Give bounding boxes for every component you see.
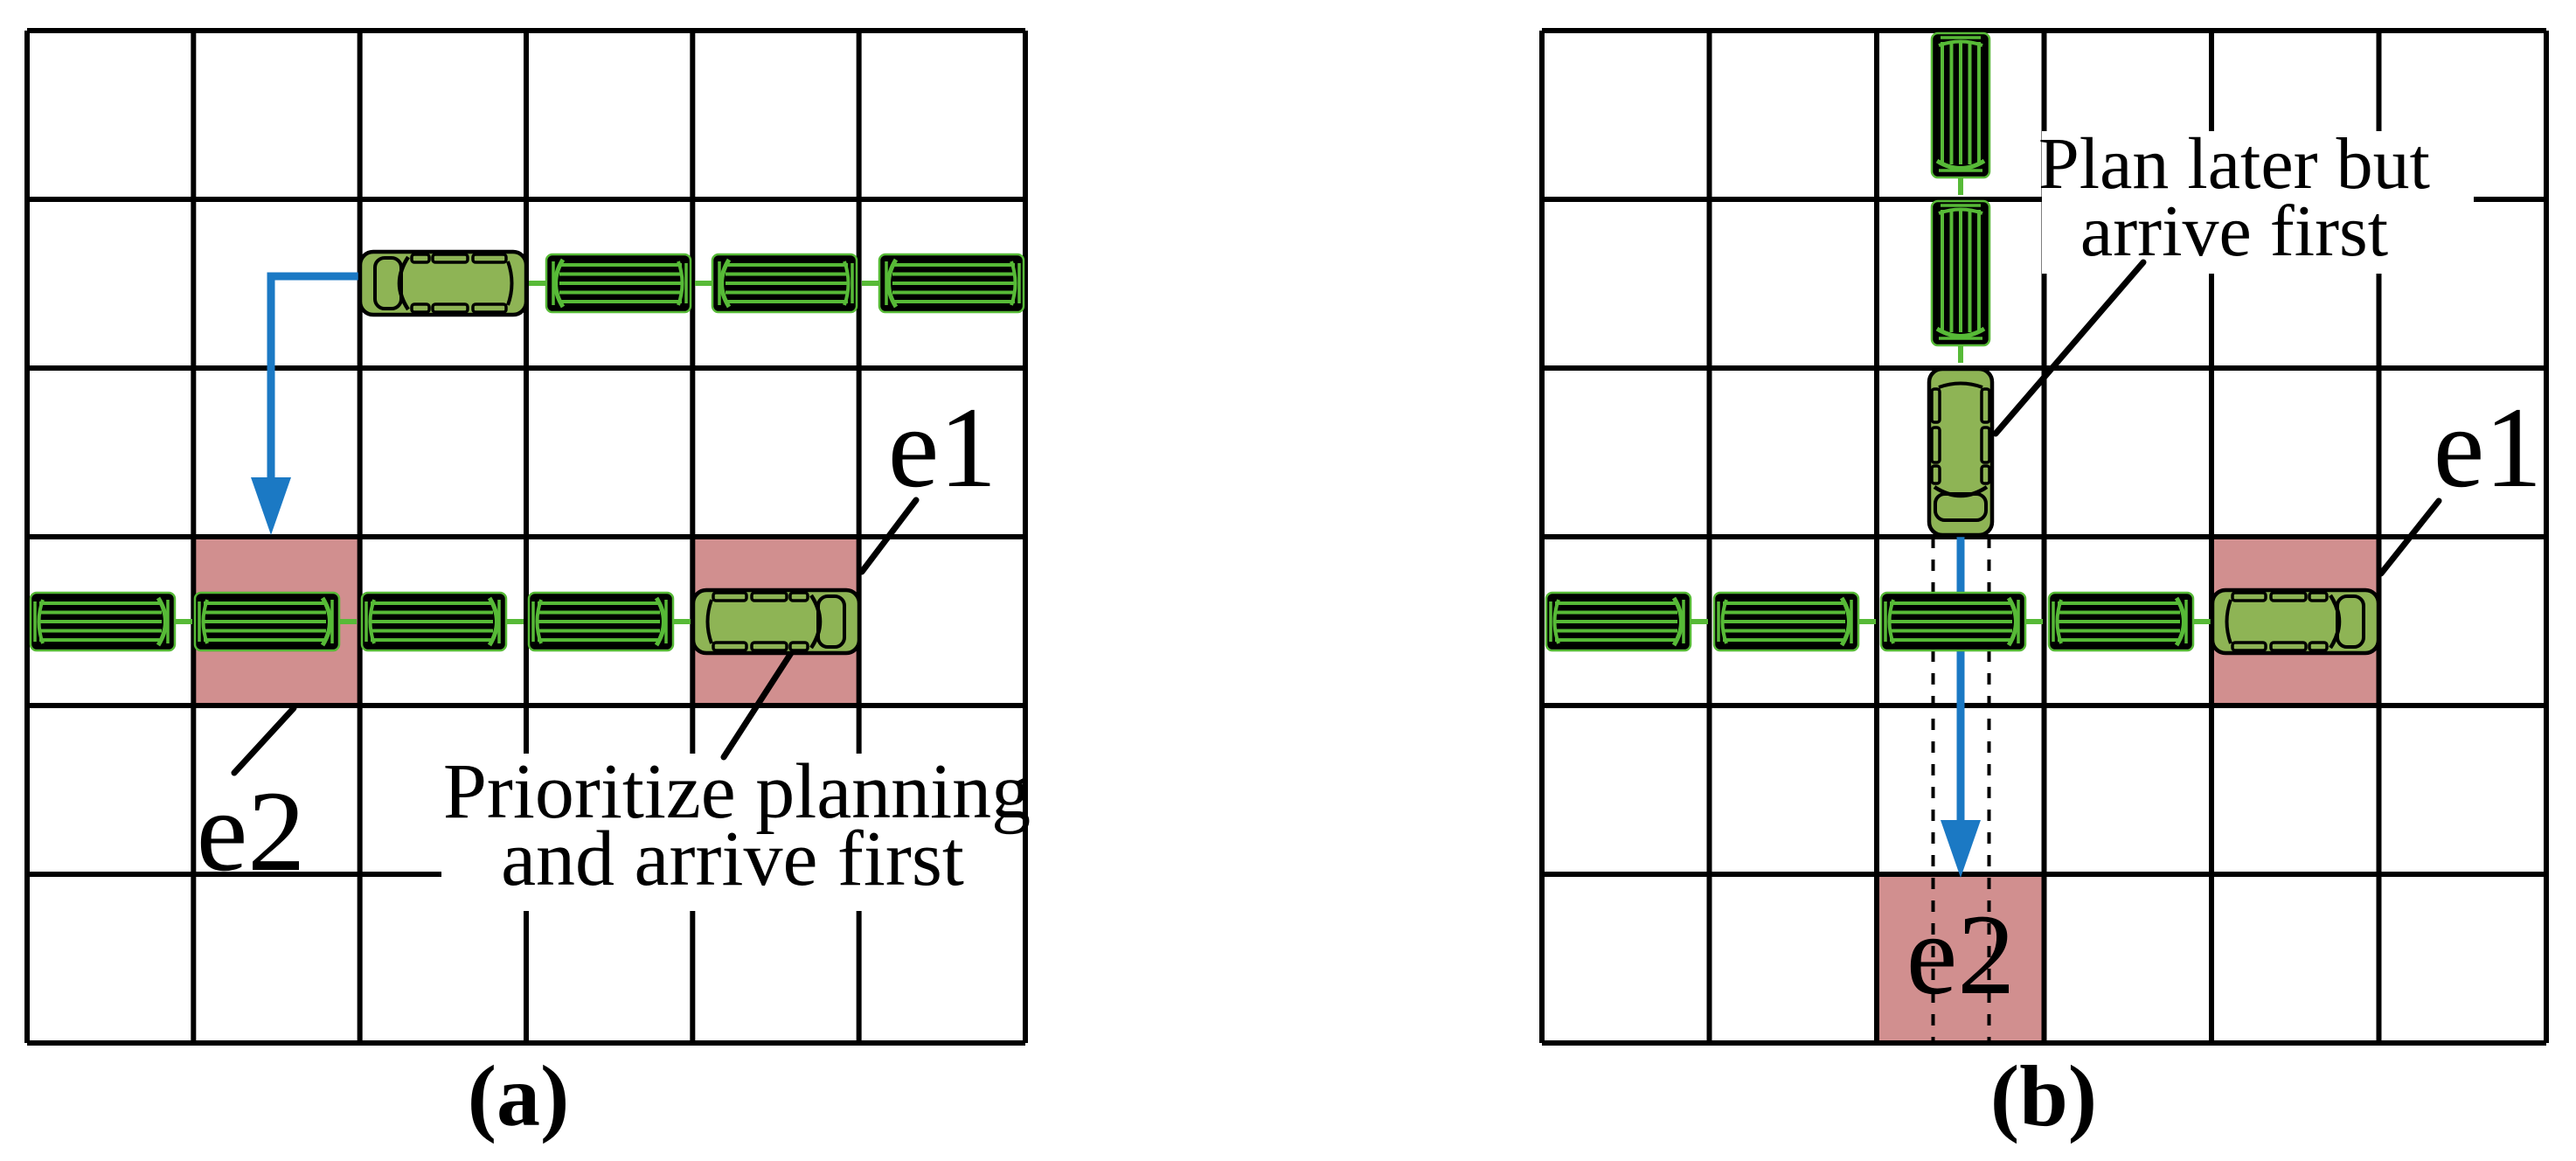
car-icon: [693, 590, 859, 653]
truck-icon: [31, 593, 192, 650]
truck-icon: [529, 593, 691, 650]
truck-icon: [1546, 593, 1708, 650]
label-b-e2: e2: [1906, 890, 2016, 1018]
car-icon: [360, 252, 526, 315]
label-b-e1: e1: [2434, 383, 2543, 511]
truck-icon: [195, 593, 357, 650]
label-a-caption: (a): [468, 1047, 570, 1144]
figure-canvas: e1e2Prioritize planningand arrive first(…: [0, 0, 2576, 1161]
label-a-e1: e1: [888, 383, 997, 511]
label-a-e2: e2: [197, 767, 306, 895]
figure-svg: e1e2Prioritize planningand arrive first(…: [0, 0, 2576, 1161]
truck-icon: [1881, 593, 2043, 650]
car-icon: [1929, 369, 1992, 535]
label-b-annot-2: arrive first: [2080, 191, 2388, 272]
car-icon: [2212, 590, 2378, 653]
truck-icon: [1714, 593, 1876, 650]
truck-icon: [695, 254, 857, 312]
truck-icon: [1932, 201, 1989, 363]
truck-icon: [2049, 593, 2211, 650]
truck-icon: [1932, 33, 1989, 195]
truck-icon: [362, 593, 524, 650]
label-b-caption: (b): [1990, 1047, 2097, 1144]
label-a-annot-2: and arrive first: [501, 816, 964, 902]
truck-icon: [862, 254, 1024, 312]
truck-icon: [529, 254, 691, 312]
